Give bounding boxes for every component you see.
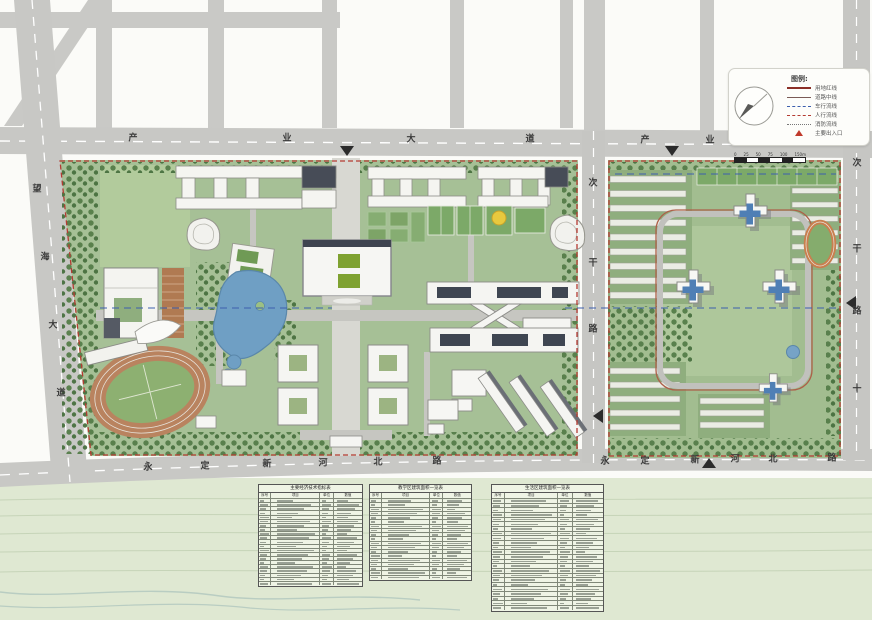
road-label-char: 北: [373, 459, 382, 468]
table-cell: [319, 553, 332, 556]
table-cell: [370, 550, 381, 553]
table-row: [492, 517, 603, 522]
table-cell: [442, 499, 471, 502]
table-cell: [381, 499, 429, 502]
table-row: [492, 605, 603, 610]
table-cell: [504, 546, 557, 550]
table-cell: [492, 564, 504, 568]
yellow-pavilion: [492, 211, 506, 225]
table-cell: [429, 542, 442, 545]
table-row: [259, 552, 362, 556]
table-row: [370, 553, 471, 557]
table-cell: [572, 513, 603, 517]
table-cell: [319, 516, 332, 519]
table-cell: [572, 527, 603, 531]
table-cell: [319, 545, 332, 548]
table-cell: [429, 546, 442, 549]
table-cell: [333, 532, 362, 535]
table-cell: [319, 557, 332, 560]
table-cell: [557, 601, 571, 605]
legend-dashed-blue-line: [787, 106, 811, 107]
library-building: [303, 240, 391, 305]
table-row: [370, 498, 471, 502]
row-building: [792, 188, 838, 194]
table-cell: [370, 529, 381, 532]
table-cell: [442, 563, 471, 566]
table-cell: [259, 569, 270, 572]
table-cell: [270, 507, 319, 510]
table-row: [492, 498, 603, 503]
table-row: [259, 560, 362, 564]
table-cell: [381, 571, 429, 574]
table-header-cell: 序号: [492, 493, 504, 498]
table-cell: [442, 512, 471, 515]
table-row: [492, 596, 603, 601]
table-cell: [492, 508, 504, 512]
table-cell: [504, 536, 557, 540]
north-arrow-icon: [732, 84, 776, 128]
road-label-char: 十: [852, 386, 861, 395]
road-label-char: 干: [852, 246, 861, 255]
table-cell: [572, 583, 603, 587]
table-row: [370, 502, 471, 506]
road-label-char: 干: [588, 260, 597, 269]
table-cell: [381, 525, 429, 528]
table-cell: [429, 529, 442, 532]
table-cell: [381, 516, 429, 519]
table-cell: [572, 499, 603, 503]
table-cell: [370, 520, 381, 523]
table-cell: [492, 578, 504, 582]
table-cell: [381, 576, 429, 579]
table-cell: [333, 582, 362, 585]
legend-entrance-triangle-icon: [795, 130, 803, 136]
table-cell: [492, 513, 504, 517]
table-cell: [572, 592, 603, 596]
table-cell: [319, 499, 332, 502]
table-cell: [370, 542, 381, 545]
table-cell: [259, 545, 270, 548]
table-cell: [259, 524, 270, 527]
table-row: [259, 539, 362, 543]
table-cell: [492, 583, 504, 587]
table-cell: [572, 518, 603, 522]
table-row: [370, 562, 471, 566]
table-cell: [557, 518, 571, 522]
table-cell: [429, 525, 442, 528]
table-cell: [370, 563, 381, 566]
table-cell: [442, 533, 471, 536]
road-label-char: 道: [525, 136, 534, 145]
table-cell: [557, 536, 571, 540]
scale-tick: 150m: [794, 152, 806, 157]
table-cell: [333, 549, 362, 552]
table-cell: [429, 503, 442, 506]
road-label-char: 路: [432, 458, 441, 467]
table-cell: [572, 564, 603, 568]
table-header-cell: 单位: [319, 493, 332, 498]
west-lawn: [100, 165, 190, 267]
table-cell: [504, 499, 557, 503]
table-cell: [429, 563, 442, 566]
table-cell: [572, 508, 603, 512]
table-cell: [259, 553, 270, 556]
table-cell: [504, 504, 557, 508]
road-label-char: 产: [640, 137, 649, 146]
table-cell: [504, 601, 557, 605]
table-cell: [333, 557, 362, 560]
table-cell: [370, 554, 381, 557]
table-row: [259, 527, 362, 531]
table-cell: [333, 520, 362, 523]
table-cell: [270, 565, 319, 568]
table-cell: [442, 537, 471, 540]
road-label-char: 次: [852, 160, 861, 169]
table-cell: [492, 550, 504, 554]
table-row: [259, 564, 362, 568]
table-cell: [557, 597, 571, 601]
table-cell: [270, 578, 319, 581]
row-building: [700, 422, 764, 428]
table-cell: [370, 512, 381, 515]
legend-item-label: 主要出入口: [815, 129, 843, 137]
table-cell: [492, 555, 504, 559]
table-row: [492, 554, 603, 559]
table-cell: [442, 520, 471, 523]
table-cell: [319, 540, 332, 543]
table-cell: [557, 499, 571, 503]
table-cell: [270, 520, 319, 523]
table-cell: [492, 522, 504, 526]
table-cell: [259, 574, 270, 577]
table-cell: [504, 587, 557, 591]
table-row: [370, 524, 471, 528]
table-cell: [333, 561, 362, 564]
table-row: [492, 507, 603, 512]
table-cell: [319, 578, 332, 581]
table-cell: [319, 520, 332, 523]
row-building: [610, 396, 680, 402]
road-label-char: 产: [128, 135, 137, 144]
table-cell: [429, 512, 442, 515]
table-cell: [270, 549, 319, 552]
east-sports-strip: [697, 168, 837, 185]
table-cell: [429, 550, 442, 553]
south-gate: [330, 436, 362, 447]
table-cell: [557, 574, 571, 578]
table-row: [259, 548, 362, 552]
table-cell: [572, 578, 603, 582]
triangle-hall-west: [187, 218, 220, 250]
table-cell: [370, 559, 381, 562]
table-cell: [572, 601, 603, 605]
table-cell: [429, 576, 442, 579]
table-cell: [572, 597, 603, 601]
table-cell: [259, 520, 270, 523]
table-cell: [319, 574, 332, 577]
table-cell: [572, 560, 603, 564]
table-cell: [270, 524, 319, 527]
table-cell: [381, 542, 429, 545]
row-building: [610, 220, 686, 227]
table-cell: [270, 503, 319, 506]
table-cell: [557, 541, 571, 545]
table-cell: [333, 528, 362, 531]
table-cell: [442, 542, 471, 545]
table-cell: [429, 567, 442, 570]
table-title: 生活区建筑面积一览表: [492, 485, 603, 493]
table-cell: [333, 565, 362, 568]
scale-tick: 50: [756, 152, 761, 157]
table-cell: [333, 553, 362, 556]
row-building: [610, 368, 680, 374]
table-cell: [442, 559, 471, 562]
table-cell: [370, 533, 381, 536]
table-cell: [492, 518, 504, 522]
table-cell: [492, 606, 504, 610]
table-cell: [381, 533, 429, 536]
table-cell: [270, 545, 319, 548]
table-cell: [492, 532, 504, 536]
table-cell: [442, 567, 471, 570]
table-cell: [504, 522, 557, 526]
row-building: [610, 191, 686, 198]
table-row: [492, 559, 603, 564]
table-cell: [381, 550, 429, 553]
table-row: [492, 586, 603, 591]
east-running-track: [806, 222, 834, 266]
table-cell: [319, 582, 332, 585]
table-cell: [557, 560, 571, 564]
table-header-cell: 项目: [270, 493, 319, 498]
road-label-char: 望: [32, 186, 41, 195]
table-cell: [381, 567, 429, 570]
table-cell: [504, 513, 557, 517]
table-row: [492, 568, 603, 573]
table-cell: [333, 503, 362, 506]
row-building: [610, 292, 686, 299]
table-cell: [381, 520, 429, 523]
table-cell: [492, 546, 504, 550]
indicator-table-1: 主要经济技术指标表序号项目单位数值: [258, 484, 363, 587]
legend-item-label: 车行流线: [815, 102, 837, 110]
road-label-char: 业: [705, 137, 714, 146]
legend-dashed-red-line: [787, 115, 811, 116]
table-cell: [572, 522, 603, 526]
legend-solid-red-line: [787, 87, 811, 89]
table-row: [492, 526, 603, 531]
table-cell: [319, 569, 332, 572]
row-building: [700, 410, 764, 416]
table-cell: [442, 529, 471, 532]
table-cell: [270, 511, 319, 514]
table-cell: [442, 576, 471, 579]
road-label-char: 路: [852, 308, 861, 317]
table-cell: [370, 508, 381, 511]
table-row: [492, 503, 603, 508]
table-cell: [557, 583, 571, 587]
legend-title: 图例:: [791, 74, 808, 84]
table-row: [259, 498, 362, 502]
road-label-char: 河: [318, 460, 327, 469]
site-plan-canvas: 产 业 大 道 产 业 大 道 永 定 新 河 北 路 永 定 新 河 北 路 …: [0, 0, 872, 620]
table-cell: [504, 578, 557, 582]
table-cell: [572, 541, 603, 545]
table-row: [259, 506, 362, 510]
road-label-char: 大: [406, 136, 415, 145]
table-header-cell: 数值: [333, 493, 362, 498]
table-title: 教学区建筑面积一览表: [370, 485, 471, 493]
table-cell: [504, 508, 557, 512]
table-cell: [504, 592, 557, 596]
table-row: [259, 531, 362, 535]
table-cell: [381, 529, 429, 532]
table-cell: [259, 565, 270, 568]
table-cell: [381, 546, 429, 549]
table-row: [492, 549, 603, 554]
table-row: [370, 558, 471, 562]
scale-bar-segments: [734, 157, 806, 163]
table-cell: [381, 537, 429, 540]
table-cell: [319, 561, 332, 564]
table-cell: [572, 536, 603, 540]
table-cell: [557, 504, 571, 508]
table-row: [259, 502, 362, 506]
table-header-cell: 单位: [557, 493, 571, 498]
table-cell: [504, 518, 557, 522]
table-cell: [492, 536, 504, 540]
table-cell: [572, 504, 603, 508]
table-cell: [319, 511, 332, 514]
table-cell: [504, 555, 557, 559]
table-cell: [259, 499, 270, 502]
table-cell: [381, 559, 429, 562]
table-cell: [504, 527, 557, 531]
table-row: [492, 540, 603, 545]
table-cell: [492, 592, 504, 596]
legend-solid-thin-line: [787, 97, 811, 98]
table-cell: [429, 559, 442, 562]
road-label-char: 路: [827, 455, 836, 464]
table-cell: [572, 546, 603, 550]
table-row: [370, 515, 471, 519]
table-cell: [492, 541, 504, 545]
table-row: [259, 544, 362, 548]
table-cell: [259, 549, 270, 552]
table-cell: [557, 532, 571, 536]
table-cell: [333, 574, 362, 577]
table-cell: [259, 561, 270, 564]
table-cell: [270, 557, 319, 560]
table-cell: [319, 524, 332, 527]
table-cell: [333, 499, 362, 502]
table-cell: [442, 546, 471, 549]
table-cell: [319, 549, 332, 552]
scale-tick: 0: [734, 152, 737, 157]
table-cell: [370, 576, 381, 579]
road-label-char: 北: [768, 456, 777, 465]
table-cell: [504, 541, 557, 545]
table-cell: [492, 569, 504, 573]
table-cell: [319, 536, 332, 539]
table-cell: [370, 503, 381, 506]
table-header-cell: 数值: [572, 493, 603, 498]
table-cell: [333, 540, 362, 543]
table-row: [259, 510, 362, 514]
table-cell: [504, 606, 557, 610]
table-cell: [557, 550, 571, 554]
table-cell: [370, 525, 381, 528]
table-row: [492, 582, 603, 587]
table-cell: [333, 511, 362, 514]
table-row: [492, 591, 603, 596]
table-cell: [270, 553, 319, 556]
row-building: [792, 202, 838, 208]
table-cell: [333, 524, 362, 527]
table-cell: [429, 508, 442, 511]
legend-dotted-line: [787, 124, 811, 125]
table-row: [259, 515, 362, 519]
table-cell: [381, 508, 429, 511]
table-cell: [370, 571, 381, 574]
table-header-cell: 序号: [259, 493, 270, 498]
table-cell: [319, 528, 332, 531]
table-row: [370, 575, 471, 579]
table-row: [492, 512, 603, 517]
table-row: [370, 549, 471, 553]
scale-tick: 100: [780, 152, 788, 157]
table-title: 主要经济技术指标表: [259, 485, 362, 493]
table-cell: [429, 520, 442, 523]
table-cell: [270, 561, 319, 564]
table-cell: [557, 587, 571, 591]
road-label-char: 海: [40, 254, 49, 263]
fountain: [333, 298, 361, 303]
table-cell: [429, 516, 442, 519]
road-label-char: 定: [640, 458, 649, 467]
road-label-char: 路: [588, 326, 597, 335]
table-row: [259, 556, 362, 560]
table-cell: [572, 532, 603, 536]
table-cell: [557, 522, 571, 526]
table-cell: [319, 507, 332, 510]
road-label-char: 永: [143, 464, 152, 473]
table-cell: [270, 532, 319, 535]
table-cell: [381, 563, 429, 566]
table-cell: [492, 597, 504, 601]
road-label-char: 道: [56, 390, 65, 399]
table-row: [370, 507, 471, 511]
table-cell: [492, 574, 504, 578]
scale-tick: 75: [768, 152, 773, 157]
table-row: [259, 568, 362, 572]
table-cell: [270, 574, 319, 577]
row-building: [610, 234, 686, 241]
table-cell: [557, 555, 571, 559]
table-cell: [572, 550, 603, 554]
table-cell: [333, 578, 362, 581]
table-cell: [504, 597, 557, 601]
table-cell: [270, 569, 319, 572]
table-cell: [259, 532, 270, 535]
table-cell: [370, 516, 381, 519]
table-cell: [442, 571, 471, 574]
road-label-char: 大: [48, 322, 57, 331]
table-header-cell: 数值: [442, 493, 471, 498]
table-cell: [270, 499, 319, 502]
table-cell: [259, 503, 270, 506]
table-cell: [557, 527, 571, 531]
